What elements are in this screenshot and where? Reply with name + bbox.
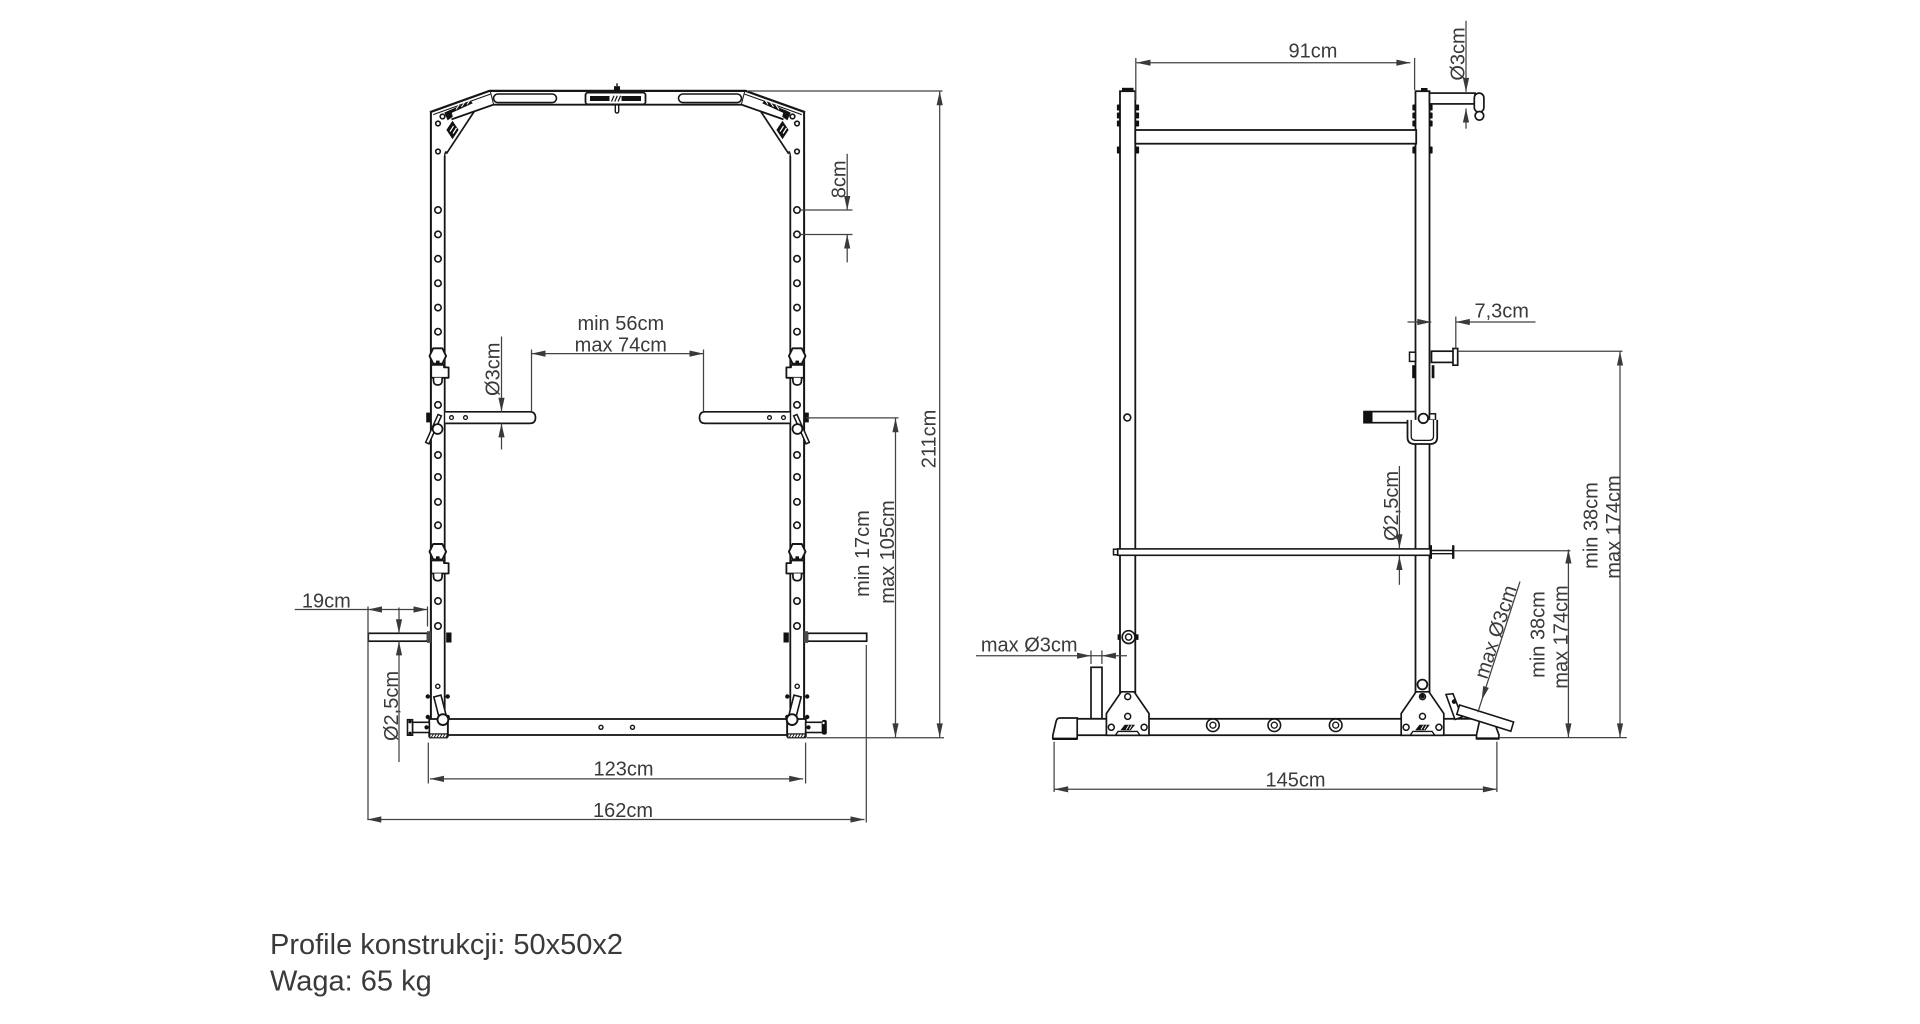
svg-text:Ø3cm: Ø3cm <box>483 343 505 396</box>
svg-text:min 38cm: min 38cm <box>1528 591 1550 678</box>
svg-text:162cm: 162cm <box>593 800 653 822</box>
svg-text:145cm: 145cm <box>1265 769 1325 791</box>
svg-text:max Ø3cm: max Ø3cm <box>981 635 1078 657</box>
svg-text:min 17cm: min 17cm <box>852 510 874 597</box>
svg-text:Ø2,5cm: Ø2,5cm <box>1381 471 1403 541</box>
svg-text:Ø2,5cm: Ø2,5cm <box>381 671 403 741</box>
svg-text:max 174cm: max 174cm <box>1551 585 1573 688</box>
svg-text:123cm: 123cm <box>593 758 653 780</box>
svg-text:max 74cm: max 74cm <box>575 334 667 356</box>
svg-text:19cm: 19cm <box>302 590 351 612</box>
svg-text:max 174cm: max 174cm <box>1603 475 1625 578</box>
svg-text:max 105cm: max 105cm <box>877 500 899 603</box>
svg-text:Ø3cm: Ø3cm <box>1448 27 1470 80</box>
svg-text:91cm: 91cm <box>1289 41 1338 63</box>
svg-text:211cm: 211cm <box>919 410 941 469</box>
svg-text:8cm: 8cm <box>829 160 851 198</box>
svg-text:Profile konstrukcji: 50x50x2: Profile konstrukcji: 50x50x2 <box>270 929 623 961</box>
svg-text:min 56cm: min 56cm <box>577 313 664 335</box>
svg-text:7,3cm: 7,3cm <box>1474 301 1528 323</box>
svg-text:min 38cm: min 38cm <box>1581 482 1603 569</box>
svg-text:Waga: 65 kg: Waga: 65 kg <box>270 966 432 998</box>
